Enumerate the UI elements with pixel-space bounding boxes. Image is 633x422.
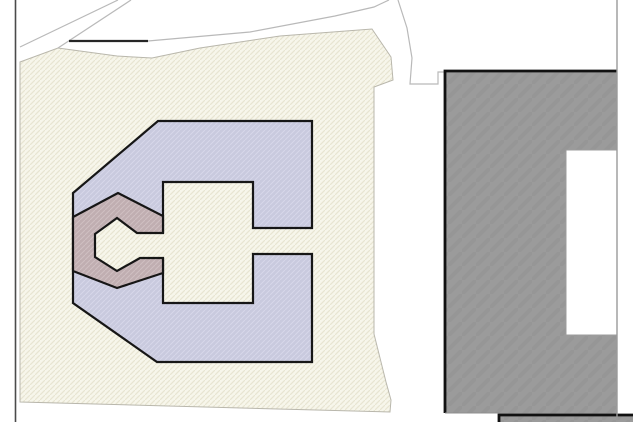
gray-building-notch [566, 150, 617, 335]
road-edge-line-4 [398, 0, 445, 84]
site-plan-map [0, 0, 633, 422]
site-plan-canvas [0, 0, 633, 422]
